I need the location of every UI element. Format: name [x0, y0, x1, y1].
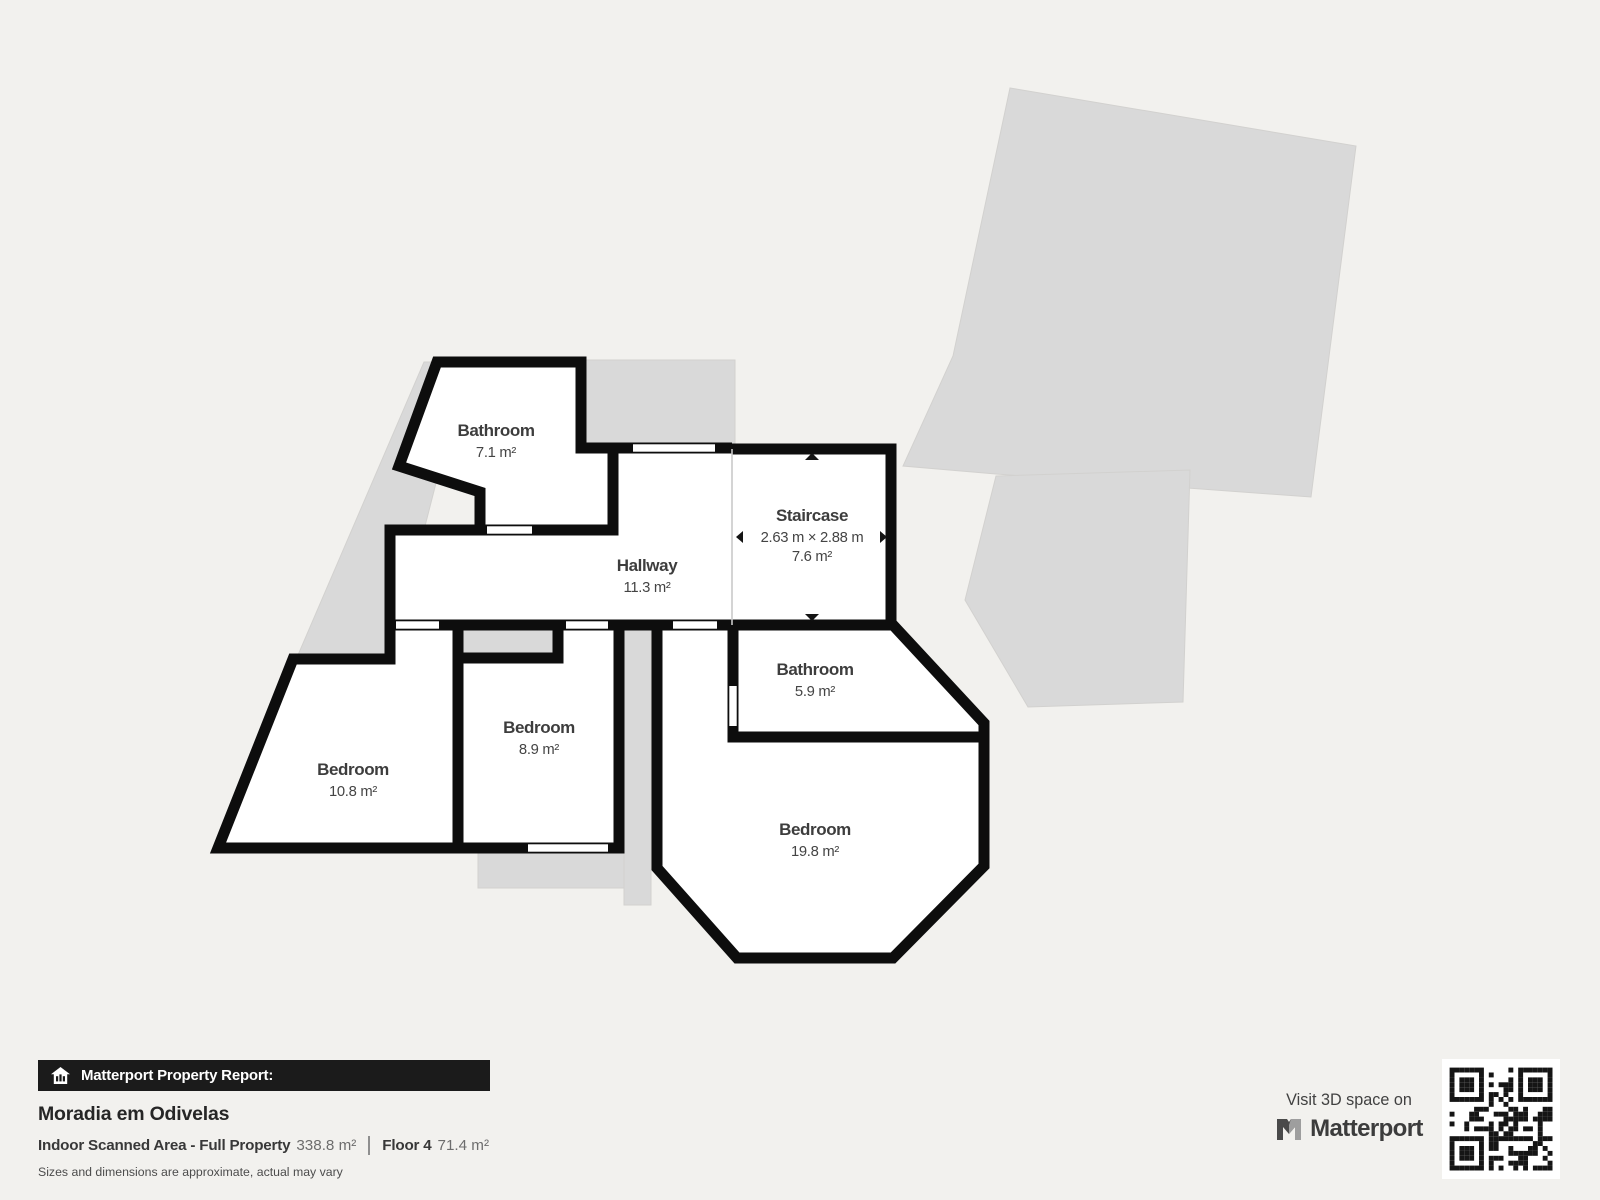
report-banner-label: Matterport Property Report: [81, 1067, 273, 1084]
underlay-closet-nook [462, 628, 553, 655]
label-hallway-name: Hallway [617, 556, 678, 575]
floor-area-value: 71.4 m² [438, 1137, 490, 1154]
underlay-rect-bottom [478, 852, 648, 888]
door-hallway-top [633, 443, 715, 454]
property-title: Moradia em Odivelas [38, 1103, 490, 1126]
underlay-rect-top [585, 360, 735, 445]
label-bathroom-top-name: Bathroom [457, 421, 534, 440]
label-bathroom-lower-area: 5.9 m² [795, 684, 836, 700]
label-hallway-area: 11.3 m² [624, 580, 671, 596]
room-bedroom-left [218, 625, 458, 848]
door-bedroom-large [673, 620, 717, 631]
floor-label: Floor 4 [382, 1137, 431, 1154]
matterport-logo: Matterport [1230, 1115, 1468, 1143]
label-bedroom-left-name: Bedroom [317, 760, 389, 779]
label-staircase-area: 7.6 m² [792, 549, 833, 565]
window-bedroom-middle [528, 843, 608, 854]
label-bedroom-large-area: 19.8 m² [791, 844, 839, 860]
label-staircase-name: Staircase [776, 506, 848, 525]
door-bathroom-top [487, 525, 532, 536]
matterport-wordmark: Matterport [1310, 1115, 1423, 1143]
label-bedroom-left-area: 10.8 m² [329, 784, 377, 800]
area-stats-line: Indoor Scanned Area - Full Property 338.… [38, 1136, 490, 1155]
scanned-area-value: 338.8 m² [296, 1137, 356, 1154]
scanned-area-label: Indoor Scanned Area - Full Property [38, 1137, 290, 1154]
visit-3d-promo: Visit 3D space on Matterport [1230, 1091, 1468, 1143]
underlay-upper-floor-large [903, 88, 1356, 497]
door-bedroom-left [396, 620, 439, 631]
matterport-property-report-page: Bathroom 7.1 m² Staircase 2.63 m × 2.88 … [0, 0, 1600, 1200]
underlay-upper-floor-lower [965, 470, 1190, 707]
door-bathroom-lower [728, 686, 739, 726]
visit-3d-text: Visit 3D space on [1230, 1091, 1468, 1110]
stats-divider [368, 1136, 370, 1155]
label-staircase-dimensions: 2.63 m × 2.88 m [761, 530, 864, 546]
label-bedroom-middle-name: Bedroom [503, 718, 575, 737]
door-bedroom-middle [566, 620, 608, 631]
underlay-strip-middle [624, 628, 651, 905]
floorplan-canvas: Bathroom 7.1 m² Staircase 2.63 m × 2.88 … [0, 0, 1600, 1200]
report-info-panel: Matterport Property Report: Moradia em O… [38, 1060, 490, 1179]
disclaimer-text: Sizes and dimensions are approximate, ac… [38, 1165, 490, 1179]
label-bathroom-lower-name: Bathroom [776, 660, 853, 679]
label-bedroom-large-name: Bedroom [779, 820, 851, 839]
matterport-m-icon [1275, 1115, 1303, 1143]
label-bathroom-top-area: 7.1 m² [476, 445, 517, 461]
label-bedroom-middle-area: 8.9 m² [519, 742, 560, 758]
report-banner: Matterport Property Report: [38, 1060, 490, 1091]
house-chart-icon [51, 1067, 70, 1084]
room-bathroom-lower [733, 625, 984, 737]
